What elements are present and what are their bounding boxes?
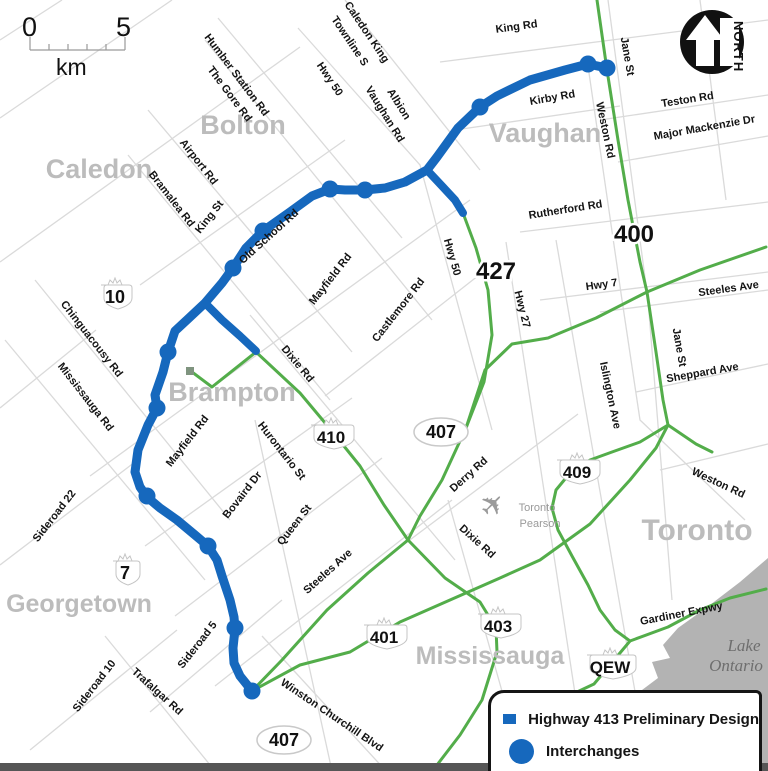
city-label: Toronto: [641, 514, 752, 547]
highway-shield-407: 407: [414, 418, 468, 446]
road-label: Hwy 50: [314, 60, 345, 98]
road-label: Trafalgar Rd: [129, 666, 185, 718]
road-label: Rutherford Rd: [528, 198, 604, 222]
legend-row-interchanges: Interchanges: [503, 735, 759, 767]
shield-crown: [570, 453, 584, 460]
shield-number: 407: [269, 730, 299, 750]
shield-crown: [108, 278, 122, 285]
highway-shield-407: 407: [257, 726, 311, 754]
road-label: Mayfield Rd: [164, 413, 211, 469]
shield-crown: [603, 648, 617, 655]
legend-row-route: Highway 413 Preliminary Design: [503, 703, 759, 735]
interchange-dot: [200, 538, 217, 555]
scale-bar-ruler: [30, 37, 125, 50]
interchange-dot: [225, 260, 242, 277]
road-label: Sideroad 22: [31, 488, 79, 545]
shield-number: 7: [120, 563, 130, 583]
shield-number: 10: [105, 287, 125, 307]
minor-road: [600, 290, 768, 312]
road-label: Kirby Rd: [529, 88, 576, 108]
interchange-dot: [472, 99, 489, 116]
legend-label-interchanges: Interchanges: [546, 743, 639, 760]
road-label: Hurontario St: [255, 420, 308, 483]
city-label: Caledon: [46, 154, 153, 184]
airport-label: Pearson: [520, 518, 561, 530]
road-label: Islington Ave: [597, 361, 623, 430]
interchange-dot: [599, 60, 616, 77]
road-label: Jane St: [618, 36, 637, 77]
interchange-dot-swatch: [509, 739, 534, 764]
highway-413-line-swatch: [503, 714, 516, 724]
road-label: Dixie Rd: [457, 523, 498, 561]
minor-road: [608, 0, 672, 600]
highway-shield-400: 400: [614, 221, 654, 248]
road-label: Mississauga Rd: [55, 361, 116, 434]
highway-shield-427: 427: [476, 258, 516, 285]
shield-number: 401: [370, 628, 398, 647]
road-label: Old School Rd: [237, 207, 301, 267]
hwy410-terminus-marker: [186, 367, 194, 375]
shield-crown: [377, 618, 391, 625]
road-label: Steeles Ave: [301, 547, 354, 597]
road-label: King St: [193, 198, 226, 236]
road-label: Castlemore Rd: [370, 276, 427, 345]
shield-number: QEW: [590, 658, 632, 677]
road-label: Weston Rd: [690, 466, 747, 501]
road-label: Queen St: [275, 502, 314, 548]
minor-road: [660, 444, 768, 470]
road-label: King Rd: [495, 18, 538, 36]
shield-crown: [324, 418, 338, 425]
highway-map-svg: CaledonBoltonVaughanBramptonGeorgetownMi…: [0, 0, 768, 771]
road-label: Sideroad 5: [176, 619, 220, 671]
road-label: Bramalea Rd: [146, 169, 197, 229]
city-label: Brampton: [168, 377, 296, 407]
shield-number: 427: [476, 258, 516, 285]
shield-number: 403: [484, 617, 512, 636]
north-arrow: NORTH: [678, 8, 748, 78]
road-label: Sideroad 10: [71, 658, 119, 715]
shield-number: 400: [614, 221, 654, 248]
road-label: Derry Rd: [448, 455, 491, 495]
scale-end-label: 5: [116, 12, 131, 42]
interchange-dot: [149, 400, 166, 417]
lake-label: Ontario: [709, 656, 763, 675]
road-label: Hwy 50: [441, 237, 463, 277]
shield-crown: [118, 554, 132, 561]
interchange-dot: [580, 56, 597, 73]
scale-unit-label: km: [56, 54, 87, 80]
city-label: Vaughan: [489, 118, 602, 148]
highway-413-spur: [427, 170, 463, 213]
shield-number: 407: [426, 422, 456, 442]
road-label: Mayfield Rd: [307, 251, 354, 307]
road-label: Hwy 27: [512, 289, 533, 329]
map-canvas: CaledonBoltonVaughanBramptonGeorgetownMi…: [0, 0, 768, 771]
north-label: NORTH: [731, 21, 746, 72]
city-label: Mississauga: [416, 642, 566, 670]
shield-number: 410: [317, 428, 345, 447]
minor-road: [618, 136, 768, 162]
interchange-dot: [322, 181, 339, 198]
road-label: Major Mackenzie Dr: [653, 113, 757, 143]
shield-number: 409: [563, 463, 591, 482]
interchange-dot: [357, 182, 374, 199]
road-label: Steeles Ave: [698, 279, 760, 299]
highway-shield-7: 7: [113, 554, 140, 585]
road-label: Jane St: [670, 327, 689, 368]
scale-bar: 0 5 km: [16, 12, 146, 82]
minor-road: [0, 462, 135, 565]
airplane-icon: ✈: [473, 485, 514, 526]
interchange-dot: [244, 683, 261, 700]
airport-label: Toronto: [519, 502, 556, 514]
highway-413-spur: [205, 303, 256, 351]
highway-shield-10: 10: [101, 278, 132, 309]
interchange-dot: [160, 344, 177, 361]
shield-crown: [491, 607, 505, 614]
interchange-dot: [227, 620, 244, 637]
interchange-dot: [139, 488, 156, 505]
lake-label: Lake: [726, 636, 761, 655]
city-label: Georgetown: [6, 590, 152, 618]
road-label: Airport Rd: [177, 137, 220, 187]
legend-label-route: Highway 413 Preliminary Design: [528, 711, 759, 728]
minor-road: [105, 636, 215, 771]
legend: Highway 413 Preliminary Design Interchan…: [488, 690, 762, 771]
